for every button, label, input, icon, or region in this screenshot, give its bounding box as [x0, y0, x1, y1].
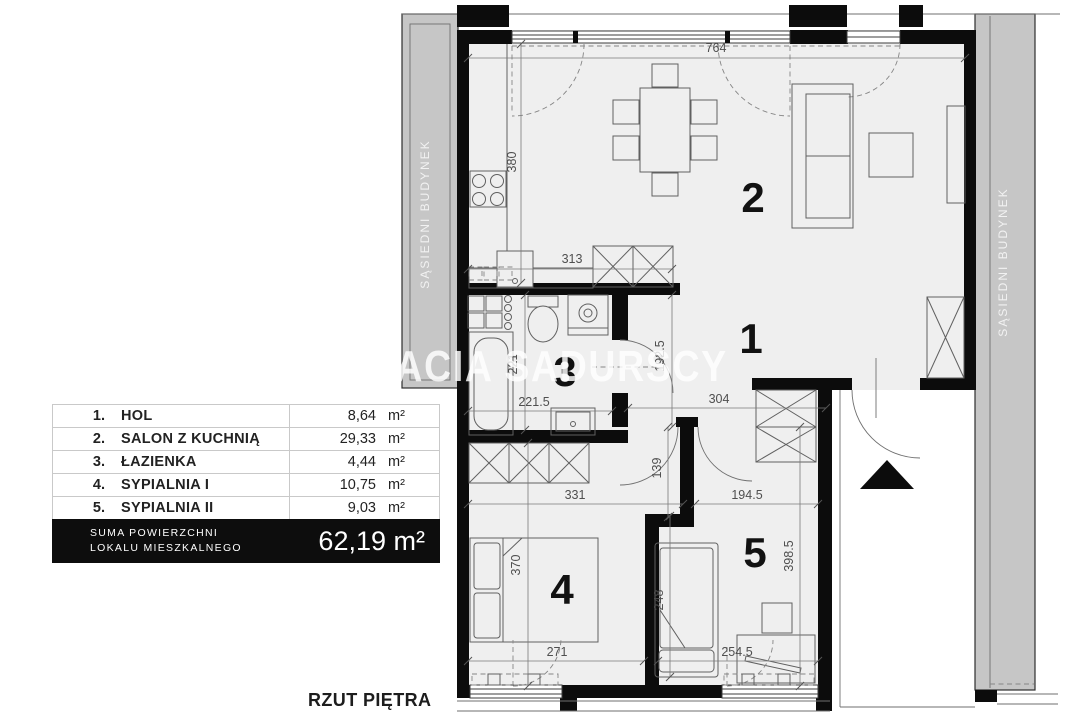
- balcony-edge: [402, 5, 1060, 27]
- dim-248: 248: [652, 590, 666, 611]
- neighbor-left-label: SĄSIEDNI BUDYNEK: [418, 139, 432, 288]
- dim-221-5: 221.5: [518, 395, 549, 409]
- legend-table: 1. HOL 8,64m² 2. SALON Z KUCHNIĄ 29,33m²…: [52, 404, 440, 563]
- entrance-door: [852, 390, 920, 489]
- legend-row: 4. SYPIALNIA I 10,75m²: [53, 473, 439, 496]
- dim-194-5: 194.5: [731, 488, 762, 502]
- dim-764: 764: [706, 41, 727, 55]
- floor-plan: SĄSIEDNI BUDYNEK SĄSIEDNI BUDYNEK: [0, 0, 1077, 727]
- dim-398-5: 398.5: [782, 540, 796, 571]
- total-area-value: 62,19: [318, 526, 386, 556]
- dim-254-5: 254.5: [721, 645, 752, 659]
- summary-label-line2: LOKALU MIESZKALNEGO: [90, 541, 242, 556]
- room-number: 5.: [53, 500, 105, 516]
- area-unit: m²: [376, 500, 434, 516]
- room-name: HOL: [105, 408, 289, 424]
- room-label-lazienka: 3: [553, 348, 576, 395]
- room-number: 1.: [53, 408, 105, 424]
- dim-313: 313: [562, 252, 583, 266]
- room-number: 2.: [53, 431, 105, 447]
- neighbor-right-label: SĄSIEDNI BUDYNEK: [996, 187, 1010, 336]
- corridor-outline: [840, 358, 975, 707]
- legend-row: 5. SYPIALNIA II 9,03m²: [53, 496, 439, 519]
- washing-machine-icon: [568, 295, 608, 335]
- area-unit: m²: [376, 477, 434, 493]
- room-area: 29,33: [290, 431, 376, 447]
- room-area: 4,44: [290, 454, 376, 470]
- dim-304: 304: [709, 392, 730, 406]
- dim-192-5: 192.5: [653, 340, 667, 371]
- room-name: SALON Z KUCHNIĄ: [105, 431, 289, 447]
- dim-271: 271: [547, 645, 568, 659]
- room-number: 3.: [53, 454, 105, 470]
- dim-221: 221: [506, 354, 520, 375]
- room-label-sypialnia2: 5: [743, 529, 766, 576]
- page-title: RZUT PIĘTRA: [308, 690, 431, 711]
- legend-row: 1. HOL 8,64m²: [53, 405, 439, 427]
- legend-row: 2. SALON Z KUCHNIĄ 29,33m²: [53, 427, 439, 450]
- room-area: 9,03: [290, 500, 376, 516]
- room-label-salon: 2: [741, 174, 764, 221]
- neighbor-building-right: SĄSIEDNI BUDYNEK: [975, 14, 1058, 704]
- dim-380: 380: [505, 152, 519, 173]
- room-label-hol: 1: [739, 315, 762, 362]
- area-unit: m²: [376, 408, 434, 424]
- neighbor-building-left: SĄSIEDNI BUDYNEK: [402, 14, 458, 388]
- floor-plan-page: SĄSIEDNI BUDYNEK SĄSIEDNI BUDYNEK: [0, 0, 1077, 727]
- dim-370: 370: [509, 555, 523, 576]
- room-name: SYPIALNIA I: [105, 477, 289, 493]
- room-name: ŁAZIENKA: [105, 454, 289, 470]
- area-unit: m²: [376, 454, 434, 470]
- legend-summary: SUMA POWIERZCHNI LOKALU MIESZKALNEGO 62,…: [52, 519, 440, 563]
- room-number: 4.: [53, 477, 105, 493]
- entrance-arrow-icon: [860, 460, 914, 489]
- room-area: 8,64: [290, 408, 376, 424]
- stove-icon: [470, 171, 506, 207]
- dim-139: 139: [650, 458, 664, 479]
- toilet-icon: [528, 296, 558, 342]
- dim-331: 331: [565, 488, 586, 502]
- legend-row: 3. ŁAZIENKA 4,44m²: [53, 450, 439, 473]
- room-name: SYPIALNIA II: [105, 500, 289, 516]
- total-area-unit: m²: [394, 526, 425, 556]
- apartment-floor: [457, 30, 976, 698]
- summary-label-line1: SUMA POWIERZCHNI: [90, 526, 242, 541]
- area-unit: m²: [376, 431, 434, 447]
- room-label-sypialnia1: 4: [550, 566, 574, 613]
- room-area: 10,75: [290, 477, 376, 493]
